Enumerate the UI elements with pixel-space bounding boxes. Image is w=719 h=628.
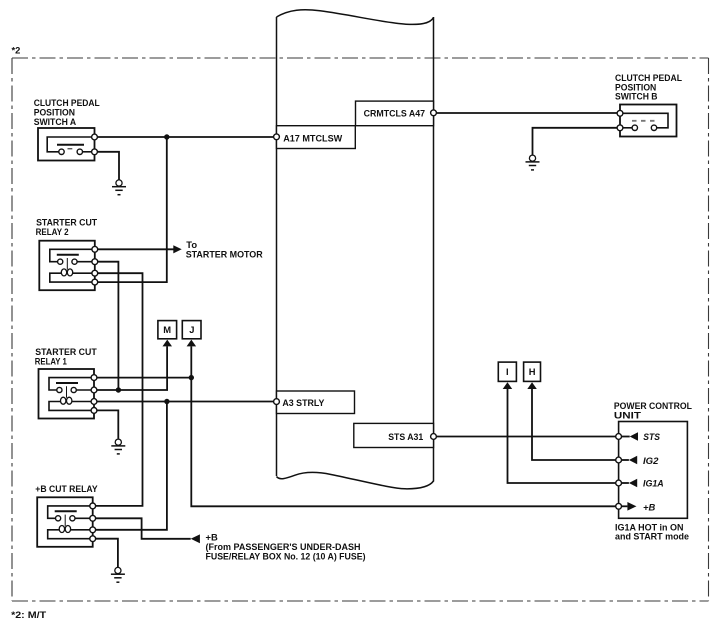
- svg-text:A17 MTCLSW: A17 MTCLSW: [283, 132, 342, 143]
- svg-text:RELAY 1: RELAY 1: [35, 356, 67, 367]
- svg-text:H: H: [529, 366, 536, 377]
- svg-text:M: M: [163, 324, 171, 335]
- svg-text:SWITCH B: SWITCH B: [615, 91, 658, 102]
- svg-text:IG2: IG2: [643, 455, 659, 466]
- svg-text:STS: STS: [643, 431, 660, 442]
- svg-text:FUSE/RELAY BOX No. 12 (10 A) F: FUSE/RELAY BOX No. 12 (10 A) FUSE): [206, 551, 366, 562]
- svg-text:*2: M/T: *2: M/T: [11, 609, 46, 620]
- svg-text:UNIT: UNIT: [614, 410, 641, 421]
- svg-text:J: J: [189, 324, 194, 335]
- svg-text:I: I: [506, 366, 509, 377]
- svg-text:*2: *2: [12, 45, 21, 56]
- svg-text:STS A31: STS A31: [388, 431, 423, 442]
- svg-text:CRMTCLS A47: CRMTCLS A47: [364, 107, 426, 118]
- svg-text:+B CUT RELAY: +B CUT RELAY: [35, 483, 98, 494]
- svg-text:+B: +B: [643, 501, 655, 512]
- svg-text:SWITCH A: SWITCH A: [34, 116, 77, 127]
- svg-text:and START mode: and START mode: [615, 531, 689, 542]
- svg-text:A3 STRLY: A3 STRLY: [282, 397, 325, 408]
- svg-text:STARTER MOTOR: STARTER MOTOR: [186, 249, 263, 260]
- svg-text:IG1A: IG1A: [643, 478, 664, 489]
- svg-text:RELAY 2: RELAY 2: [36, 226, 69, 237]
